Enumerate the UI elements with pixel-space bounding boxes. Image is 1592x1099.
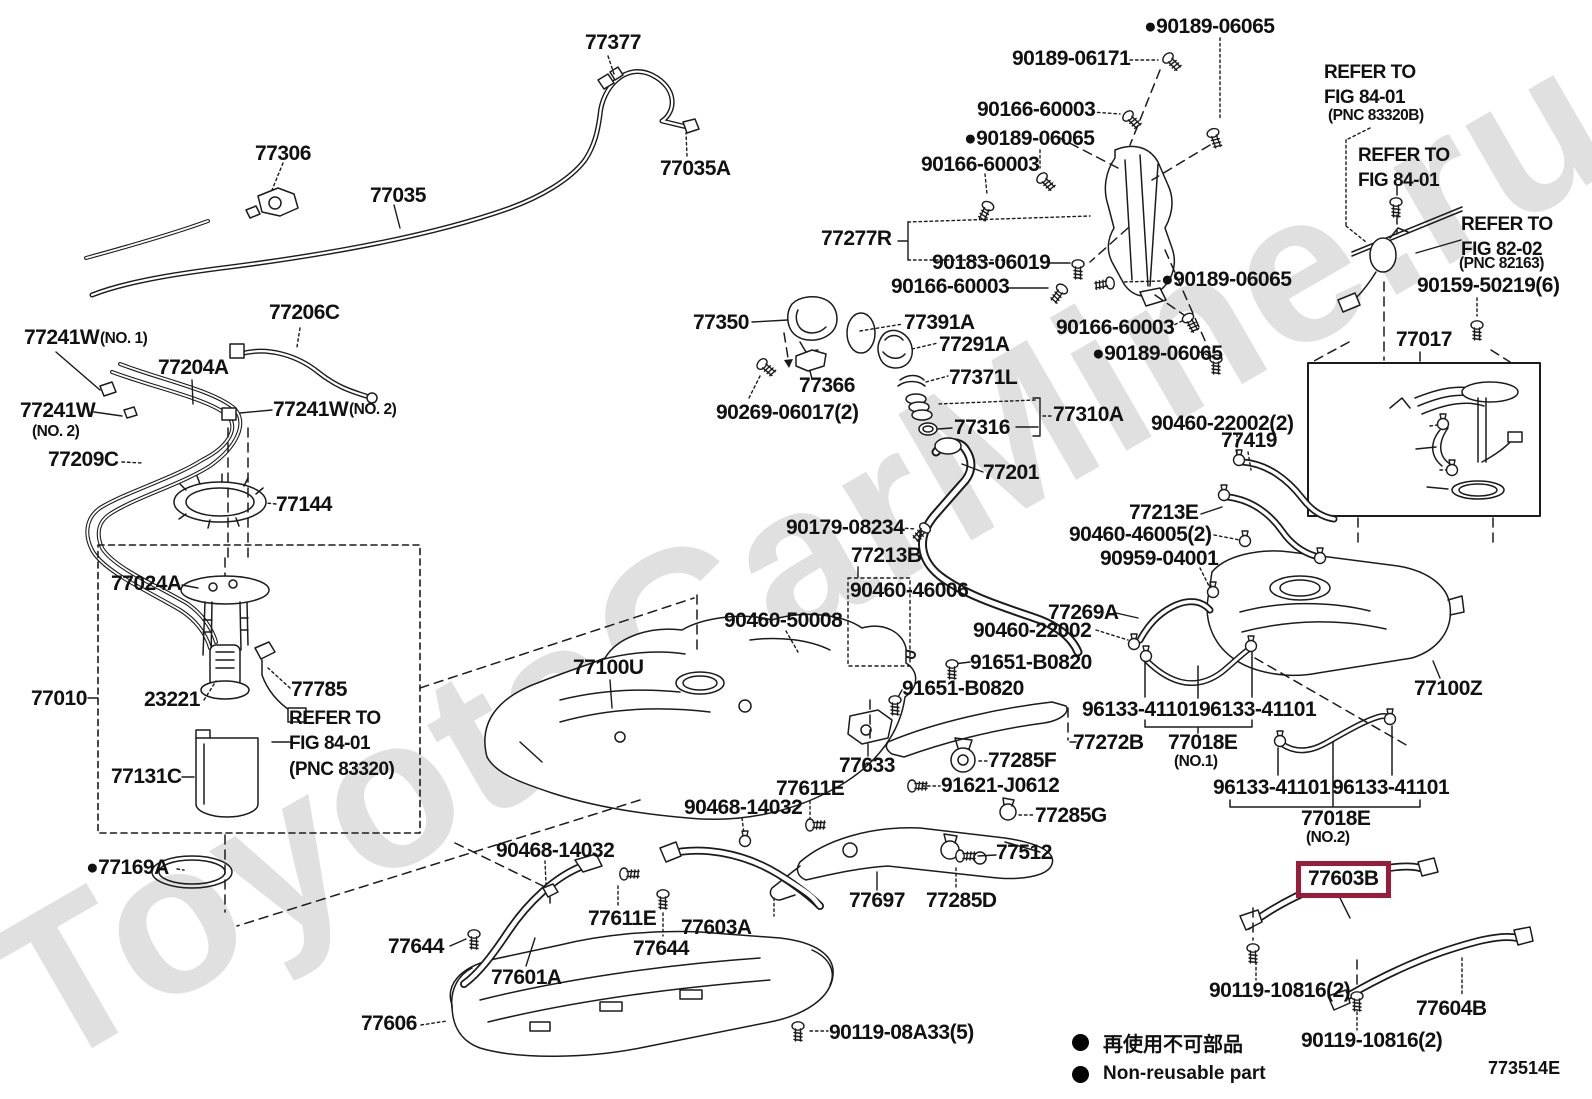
part-number-label[interactable]: 77697 (849, 890, 905, 913)
part-number-label[interactable]: 90166-60003 (891, 276, 1009, 299)
part-number-label[interactable]: 77204A (158, 357, 229, 380)
part-number-label[interactable]: 91621-J0612 (941, 775, 1059, 798)
part-number-label[interactable]: 77100Z (1414, 678, 1482, 701)
part-number-label[interactable]: 91651-B0820 (902, 678, 1024, 701)
part-number-label[interactable]: 77017 (1396, 329, 1452, 352)
part-number-label[interactable]: 77206C (269, 302, 340, 325)
part-number-label[interactable]: 77310A (1053, 404, 1124, 427)
part-number-label[interactable]: 91651-B0820 (970, 652, 1092, 675)
non-reusable-dot-icon (1072, 1034, 1089, 1051)
note-label: (NO. 2) (32, 424, 79, 441)
part-number-label[interactable]: 77644 (388, 936, 444, 959)
note-label: REFER TO FIG 84-01 (1358, 143, 1450, 194)
part-number-label[interactable]: ●90189-06065 (1144, 16, 1274, 39)
legend-text-en: Non-reusable part (1103, 1063, 1266, 1085)
part-number-label[interactable]: 77241W (273, 399, 348, 422)
note-label: (PNC 82163) (1459, 256, 1544, 273)
part-number-label[interactable]: 96133-41101 (1332, 777, 1449, 800)
figure-code: 773514E (1488, 1058, 1560, 1079)
note-label: (PNC 83320B) (1328, 108, 1424, 125)
part-number-label[interactable]: 77100U (573, 657, 644, 680)
part-number-label[interactable]: 77606 (361, 1013, 417, 1036)
part-number-label[interactable]: 77285G (1035, 805, 1107, 828)
part-labels-layer: 77377773067703577035A●90189-0606590189-0… (0, 0, 1592, 1099)
part-number-label[interactable]: 77209C (48, 449, 119, 472)
part-number-label[interactable]: 77035 (370, 185, 426, 208)
legend: 再使用不可部品 Non-reusable part (1072, 1026, 1266, 1090)
part-number-label[interactable]: 77241W (24, 327, 99, 350)
part-number-label[interactable]: 77377 (585, 32, 641, 55)
part-number-label[interactable]: 77213E (1129, 502, 1198, 525)
part-number-label[interactable]: 77611E (588, 908, 656, 931)
part-number-label[interactable]: 90460-22002 (973, 620, 1091, 643)
part-number-label[interactable]: 77371L (949, 367, 1017, 390)
highlighted-part-label[interactable]: 77603B (1296, 861, 1391, 898)
part-number-label[interactable]: 23221 (144, 689, 200, 712)
part-number-label[interactable]: 90119-08A33(5) (829, 1022, 974, 1045)
part-number-label[interactable]: 77277R (821, 228, 892, 251)
part-number-label[interactable]: 77272B (1073, 732, 1144, 755)
part-number-label[interactable]: 90159-50219(6) (1417, 275, 1559, 298)
part-number-label[interactable]: 77306 (255, 143, 311, 166)
part-number-label[interactable]: 77018E (1168, 732, 1237, 755)
note-label: REFER TO FIG 84-01 (PNC 83320) (289, 706, 394, 782)
part-number-label[interactable]: 90183-06019 (932, 252, 1050, 275)
part-number-label[interactable]: 90959-04001 (1100, 548, 1218, 571)
legend-row-jp: 再使用不可部品 (1072, 1026, 1266, 1058)
part-number-label[interactable]: 77024A (111, 573, 182, 596)
part-number-label[interactable]: 90468-14032 (496, 840, 614, 863)
part-number-label[interactable]: 77512 (996, 842, 1052, 865)
part-number-label[interactable]: 90119-10816(2) (1301, 1030, 1442, 1053)
part-number-label[interactable]: 96133-41101 (1213, 777, 1330, 800)
part-number-label[interactable]: 77201 (983, 462, 1039, 485)
note-label: (NO. 2) (349, 402, 396, 419)
part-number-label[interactable]: 77241W (20, 400, 95, 423)
part-number-label[interactable]: 77131C (111, 766, 182, 789)
non-reusable-dot-icon (1072, 1066, 1089, 1083)
note-label: (NO.2) (1306, 830, 1350, 847)
part-number-label[interactable]: 77419 (1221, 430, 1277, 453)
part-number-label[interactable]: 77285F (988, 750, 1056, 773)
part-number-label[interactable]: 77144 (276, 494, 332, 517)
part-number-label[interactable]: 77633 (839, 755, 895, 778)
part-number-label[interactable]: 90269-06017(2) (716, 402, 858, 425)
part-number-label[interactable]: 77785 (291, 679, 347, 702)
part-number-label[interactable]: 90460-46006 (850, 580, 968, 603)
part-number-label[interactable]: 77213B (851, 545, 922, 568)
part-number-label[interactable]: 77350 (693, 312, 749, 335)
part-number-label[interactable]: 77604B (1416, 998, 1487, 1021)
part-number-label[interactable]: 77285D (926, 890, 997, 913)
legend-text-jp: 再使用不可部品 (1103, 1028, 1243, 1057)
part-number-label[interactable]: 77391A (904, 312, 975, 335)
legend-row-en: Non-reusable part (1072, 1058, 1266, 1090)
part-number-label[interactable]: 77010 (31, 688, 87, 711)
part-number-label[interactable]: 96133-41101 (1199, 699, 1316, 722)
part-number-label[interactable]: 77366 (799, 375, 855, 398)
part-number-label[interactable]: 90189-06171 (1012, 48, 1130, 71)
note-label: (NO.1) (1174, 754, 1218, 771)
part-number-label[interactable]: 90179-08234 (786, 517, 904, 540)
highlighted-part-number: 77603B (1308, 867, 1379, 890)
part-number-label[interactable]: 77291A (939, 334, 1010, 357)
parts-diagram-canvas: ToyotaCarMine.ru (0, 0, 1592, 1099)
part-number-label[interactable]: ●90189-06065 (1161, 269, 1291, 292)
part-number-label[interactable]: 90460-50008 (724, 610, 842, 633)
part-number-label[interactable]: 77644 (633, 938, 689, 961)
part-number-label[interactable]: 77035A (660, 158, 731, 181)
note-label: REFER TO FIG 84-01 (1324, 60, 1416, 111)
part-number-label[interactable]: ●90189-06065 (964, 128, 1094, 151)
part-number-label[interactable]: 96133-41101 (1082, 699, 1199, 722)
part-number-label[interactable]: 90460-46005(2) (1069, 524, 1211, 547)
part-number-label[interactable]: 77601A (491, 967, 562, 990)
part-number-label[interactable]: 77603A (681, 917, 752, 940)
note-label: (NO. 1) (100, 331, 147, 348)
part-number-label[interactable]: 90119-10816(2) (1209, 980, 1350, 1003)
part-number-label[interactable]: 90468-14032 (684, 797, 802, 820)
part-number-label[interactable]: ●77169A (86, 857, 169, 880)
part-number-label[interactable]: 90166-60003 (977, 99, 1095, 122)
part-number-label[interactable]: 77316 (954, 417, 1010, 440)
part-number-label[interactable]: ●90189-06065 (1092, 343, 1222, 366)
part-number-label[interactable]: 77018E (1301, 808, 1370, 831)
part-number-label[interactable]: 90166-60003 (921, 154, 1039, 177)
part-number-label[interactable]: 90166-60003 (1056, 317, 1174, 340)
